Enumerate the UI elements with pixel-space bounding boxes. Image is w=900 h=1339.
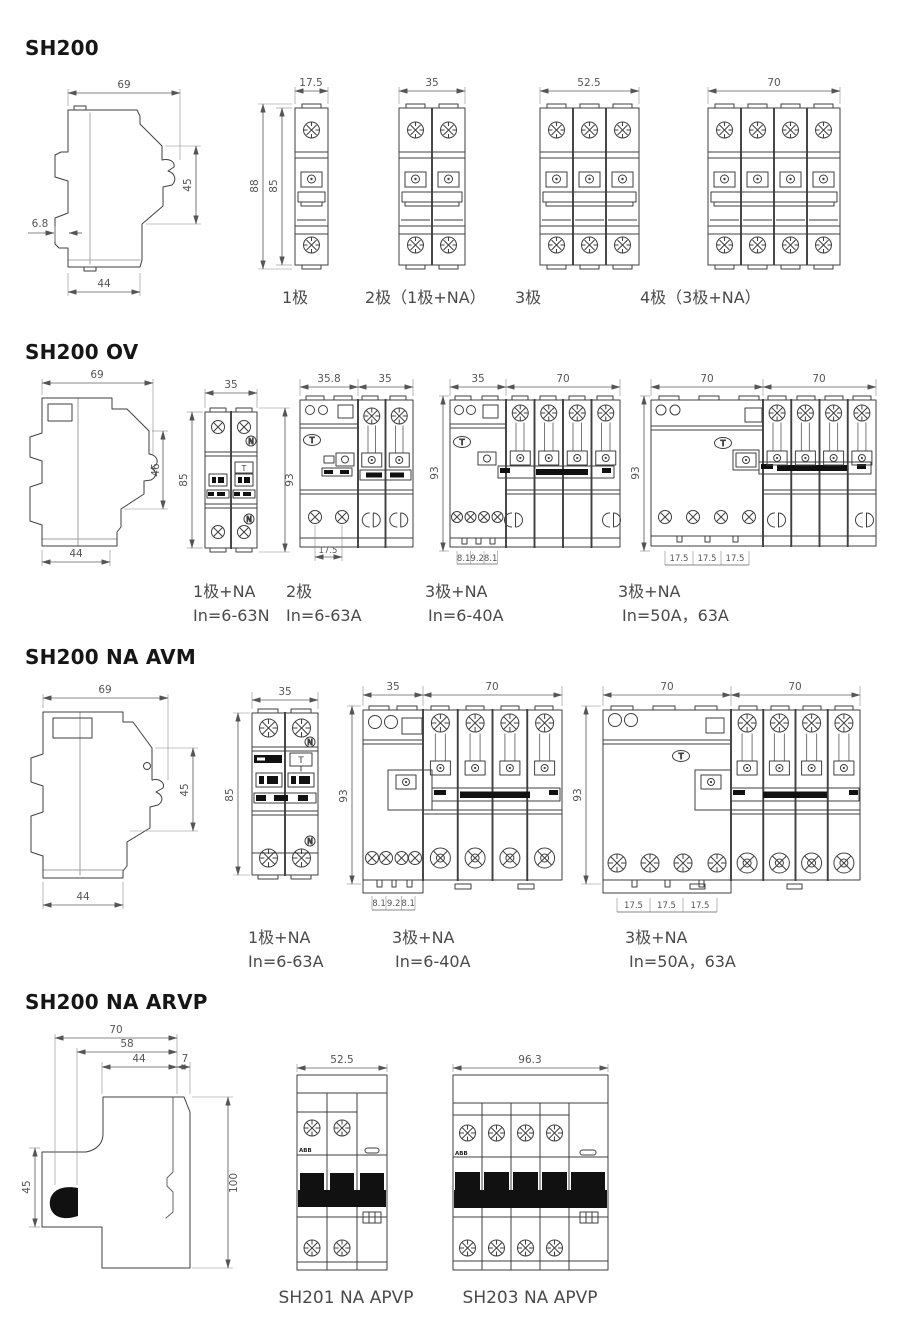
dimension-label: 8.1: [457, 554, 471, 564]
front-caption: 3极+NA: [425, 582, 488, 601]
screw-icon: [501, 714, 519, 732]
dimension: 45: [130, 748, 198, 831]
dimension-label: 70: [485, 681, 498, 693]
dimension-label: 70: [788, 681, 801, 693]
dimension-label: 9.2: [387, 899, 401, 909]
toggle-window-icon: [539, 451, 559, 465]
rating-label: In=6-40A: [428, 606, 504, 625]
screw-icon: [336, 511, 349, 524]
dimension-label: 93: [284, 473, 296, 486]
test-button-icon: [715, 438, 732, 449]
screw-icon: [409, 852, 422, 865]
terminal-icon: [856, 513, 874, 527]
sh200-ov-drawings: 69 46 44 T: [0, 365, 900, 630]
toggle-window-icon: [510, 451, 530, 465]
dimension: 46: [124, 431, 168, 509]
dimension-label: 96.3: [518, 1054, 541, 1066]
terminal-icon: [390, 513, 408, 527]
screw-icon: [659, 511, 672, 524]
screw-icon: [512, 405, 528, 421]
dimension-label: 17.5: [691, 901, 710, 911]
toggle-window-icon: [396, 775, 416, 789]
section-title-sh200-na-arvp: SH200 NA ARVP: [25, 990, 208, 1014]
dimension-label: 45: [182, 178, 194, 191]
screw-icon: [465, 848, 485, 868]
dimension-label: 93: [630, 466, 642, 479]
dimension-label: 44: [132, 1053, 146, 1065]
breaker-module: [540, 104, 573, 269]
screw-icon: [674, 854, 692, 872]
screw-icon: [802, 853, 822, 873]
dimension-label: 52.5: [330, 1054, 353, 1066]
screw-icon: [598, 405, 614, 421]
screw-icon: [489, 1240, 505, 1256]
dimension-label: 85: [178, 473, 190, 486]
screw-icon: [518, 1240, 534, 1256]
screw-icon: [293, 719, 311, 737]
test-button-label: T: [297, 756, 304, 766]
dimension-label: 35: [224, 379, 237, 391]
screw-icon: [465, 512, 476, 523]
dimension-label: 17.5: [698, 554, 717, 564]
screw-icon: [395, 852, 408, 865]
dimension-label: 69: [98, 684, 111, 696]
dimension-label: 100: [228, 1173, 240, 1193]
screw-icon: [304, 1240, 320, 1256]
screw-icon: [569, 405, 585, 421]
front-caption: 1极+NA: [248, 928, 311, 947]
dimension: 44: [68, 273, 140, 296]
dimension: 70: [55, 1024, 177, 1185]
front-caption: 2极（1极+NA）: [365, 288, 486, 307]
dimension-label: 44: [97, 278, 111, 290]
avm-front-3pna-63: 70 70 93 17.5 17.5 17.5 3极+NA In=50A，63A: [572, 681, 860, 970]
terminal-icon: [603, 513, 621, 527]
toggle-window-icon: [767, 451, 787, 465]
sh200-na-arvp-side-view: 70 58 44 7 45 100: [21, 1024, 240, 1268]
sh200-ov-front-2p: 35.8 35 17.5 2极 In=6-63A: [286, 373, 413, 625]
test-button-icon: [304, 435, 321, 446]
toggle-window-icon: [769, 761, 789, 775]
screw-icon: [541, 405, 557, 421]
sh200-ov-front-1pna: T 35 85 93 1极+NA In=6-63N: [178, 379, 296, 625]
front-caption: 3极+NA: [618, 582, 681, 601]
dimension: 44: [42, 548, 110, 566]
front-caption: SH203 NA APVP: [463, 1288, 598, 1308]
sh200-side-view: 69 45 6.8 44: [28, 79, 201, 296]
breaker-module: [295, 104, 328, 269]
dimension-label: 17.5: [319, 546, 338, 556]
front-caption: 1极+NA: [193, 582, 256, 601]
screw-icon: [479, 512, 490, 523]
screw-icon: [212, 421, 225, 434]
dimension-label: 45: [21, 1180, 33, 1193]
dimension-label: 88: [249, 179, 261, 192]
toggle-window-icon: [535, 761, 555, 775]
sh200-front-2pole: 35 2极（1极+NA）: [365, 77, 486, 307]
toggle-window-icon: [465, 761, 485, 775]
dimension-label: 17.5: [670, 554, 689, 564]
dimension-label: 9.2: [470, 554, 484, 564]
sh200-na-avm-side-view: 69 45 44: [31, 684, 198, 909]
breaker-module: [807, 104, 840, 269]
dimension-label: 70: [700, 373, 713, 385]
terminal-icon: [362, 513, 380, 527]
brand-label: ABB: [455, 1151, 468, 1157]
screw-icon: [500, 848, 520, 868]
screw-icon: [797, 405, 813, 421]
test-button-icon: [673, 751, 690, 762]
dimension-label: 35: [471, 373, 484, 385]
breaker-module: [573, 104, 606, 269]
screw-icon: [708, 854, 726, 872]
toggle-window-icon: [362, 453, 382, 467]
screw-icon: [212, 526, 225, 539]
dimension-label: 70: [556, 373, 569, 385]
toggle-window-icon: [596, 451, 616, 465]
screw-icon: [743, 511, 756, 524]
neutral-marker-icon: [305, 737, 315, 747]
screw-icon: [518, 1125, 534, 1141]
dimension-label: 93: [338, 789, 350, 802]
dimension-label: 35: [425, 77, 438, 89]
breaker-module: [432, 104, 465, 269]
toggle-window-icon: [852, 451, 872, 465]
arvp-front-sh203: ABB 96.3 SH203 NA APVP: [453, 1054, 608, 1308]
sh200-front-3pole: 52.5 3极: [515, 77, 639, 307]
dimension-label: 46: [150, 463, 162, 477]
sh200-na-avm-drawings: 69 45 44 T: [0, 670, 900, 970]
screw-icon: [430, 848, 450, 868]
dimension: 58: [77, 1038, 177, 1185]
rating-label: In=6-63N: [193, 606, 270, 625]
screw-icon: [769, 853, 789, 873]
rating-label: In=6-40A: [395, 952, 471, 970]
screw-icon: [260, 719, 278, 737]
screw-icon: [547, 1125, 563, 1141]
neutral-marker-icon: [244, 514, 254, 524]
screw-icon: [769, 405, 785, 421]
terminal-icon: [505, 513, 523, 527]
dimension-label: 70: [767, 77, 780, 89]
screw-icon: [489, 1125, 505, 1141]
screw-icon: [391, 408, 407, 424]
sh200-drawings: 69 45 6.8 44 17.5 88 85 1极: [0, 60, 900, 322]
dimension-label: 45: [179, 783, 191, 796]
section-title-sh200-na-avm: SH200 NA AVM: [25, 645, 196, 669]
section-title-sh200-ov: SH200 OV: [25, 340, 138, 364]
screw-icon: [293, 849, 311, 867]
screw-icon: [687, 511, 700, 524]
screw-icon: [238, 421, 251, 434]
brand-label: ABB: [299, 1148, 312, 1154]
toggle-window-icon: [824, 451, 844, 465]
screw-icon: [380, 852, 393, 865]
arvp-front-sh201: ABB 52.5 SH201 NA APVP: [279, 1054, 414, 1308]
dimension: 17.5 17.5 17.5: [617, 898, 717, 912]
dimension-label: 8.1: [401, 899, 415, 909]
dimension-label: 35: [386, 681, 399, 693]
screw-icon: [366, 852, 379, 865]
front-caption: 2极: [286, 582, 312, 601]
toggle-window-icon: [567, 451, 587, 465]
neutral-marker-icon: [246, 436, 256, 446]
screw-icon: [466, 714, 484, 732]
screw-icon: [715, 511, 728, 524]
breaker-module: [399, 104, 432, 269]
avm-front-3pna: 35 70 93 8.1 9.2 8.1 3极+NA In=6-40A: [338, 681, 562, 970]
screw-icon: [608, 854, 626, 872]
front-caption: 1极: [282, 288, 308, 307]
dimension: 69: [42, 369, 153, 455]
neutral-marker-icon: [305, 836, 315, 846]
dimension: 8.1 9.2 8.1: [372, 896, 415, 910]
toggle-window-icon: [389, 453, 409, 467]
dimension-label: 93: [572, 788, 584, 801]
toggle-window-icon: [430, 761, 450, 775]
screw-icon: [803, 714, 821, 732]
screw-icon: [460, 1125, 476, 1141]
dimension-label: 6.8: [32, 218, 49, 230]
toggle-window-icon: [834, 761, 854, 775]
screw-icon: [835, 714, 853, 732]
test-button-icon: [454, 437, 471, 448]
front-caption: 3极+NA: [625, 928, 688, 947]
dimension-label: 85: [224, 788, 236, 801]
front-caption: SH201 NA APVP: [279, 1288, 414, 1308]
avm-front-1pna: T 35 85 1极+NA In=6-63A: [224, 686, 324, 970]
dimension: 44: [43, 882, 123, 909]
dimension-label: 85: [268, 179, 280, 192]
rating-label: In=50A，63A: [622, 606, 729, 625]
dimension-label: 35.8: [317, 373, 340, 385]
screw-icon: [854, 405, 870, 421]
screw-icon: [364, 408, 380, 424]
dimension-label: 69: [117, 79, 130, 91]
screw-icon: [460, 1240, 476, 1256]
dimension-label: 35: [278, 686, 291, 698]
dimension-label: 58: [120, 1038, 133, 1050]
rating-label: In=50A，63A: [629, 952, 736, 970]
screw-icon: [452, 512, 463, 523]
sh200-front-1pole: 17.5 88 85 1极: [249, 77, 328, 307]
screw-icon: [260, 849, 278, 867]
dimension-label: 93: [429, 466, 441, 479]
screw-icon: [431, 714, 449, 732]
screw-icon: [834, 853, 854, 873]
breaker-module: [708, 104, 741, 269]
dimension-label: 70: [660, 681, 673, 693]
dimension-label: 7: [182, 1053, 189, 1065]
front-caption: 3极: [515, 288, 541, 307]
dimension: 69: [43, 684, 168, 780]
dimension-label: 17.5: [726, 554, 745, 564]
datasheet-page: N T SH200 69 45 6.8: [0, 0, 900, 1339]
rating-label: In=6-63A: [286, 606, 362, 625]
toggle-window-icon: [736, 453, 756, 467]
dimension-label: 17.5: [299, 77, 322, 89]
test-button-label: T: [241, 464, 247, 473]
sh200-ov-front-3pna: 35 70 93 8.1 9.2 8.1 3极+NA In=6-40A: [425, 373, 621, 625]
sh200-na-arvp-drawings: 70 58 44 7 45 100 ABB: [0, 1020, 900, 1320]
dimension-label: 44: [69, 548, 83, 560]
dimension: 45: [21, 1148, 40, 1227]
screw-icon: [492, 512, 503, 523]
screw-icon: [238, 526, 251, 539]
dimension: 8.1 9.2 8.1: [457, 551, 498, 564]
screw-icon: [737, 853, 757, 873]
screw-icon: [334, 1120, 350, 1136]
toggle-window-icon: [500, 761, 520, 775]
dimension: 69: [68, 79, 180, 160]
breaker-module: [741, 104, 774, 269]
screw-icon: [738, 714, 756, 732]
toggle-window-icon: [701, 775, 721, 789]
terminal-icon: [768, 513, 786, 527]
screw-icon: [309, 511, 322, 524]
section-title-sh200: SH200: [25, 36, 99, 60]
screw-icon: [641, 854, 659, 872]
rating-label: In=6-63A: [248, 952, 324, 970]
dimension-label: 17.5: [657, 901, 676, 911]
dimension-label: 17.5: [624, 901, 643, 911]
screw-icon: [770, 714, 788, 732]
front-caption: 3极+NA: [392, 928, 455, 947]
sh200-front-4pole: 70 4极（3极+NA）: [640, 77, 840, 307]
toggle-window-icon: [802, 761, 822, 775]
dimension: 17.5 17.5 17.5: [665, 551, 749, 565]
screw-icon: [304, 1120, 320, 1136]
dimension-label: 8.1: [372, 899, 386, 909]
toggle-window-icon: [795, 451, 815, 465]
dimension-label: 35: [378, 373, 391, 385]
dimension-label: 70: [812, 373, 825, 385]
sh200-ov-front-3pna-63: 70 70 93 17.5 17.5 17.5 3极+NA In=50A，63A: [618, 373, 876, 625]
screw-icon: [547, 1240, 563, 1256]
sh200-ov-side-view: 69 46 44: [30, 369, 168, 566]
breaker-module: [606, 104, 639, 269]
dimension-label: 69: [90, 369, 103, 381]
screw-icon: [334, 1240, 350, 1256]
dimension: 100: [192, 1097, 240, 1268]
front-caption: 4极（3极+NA）: [640, 288, 761, 307]
screw-icon: [826, 405, 842, 421]
dimension-label: 52.5: [577, 77, 600, 89]
dimension-label: 44: [76, 891, 90, 903]
toggle-window-icon: [737, 761, 757, 775]
screw-icon: [535, 848, 555, 868]
dimension-label: 8.1: [484, 554, 498, 564]
dimension: 45: [146, 146, 201, 224]
breaker-module: [774, 104, 807, 269]
dimension-label: 70: [109, 1024, 122, 1036]
screw-icon: [536, 714, 554, 732]
